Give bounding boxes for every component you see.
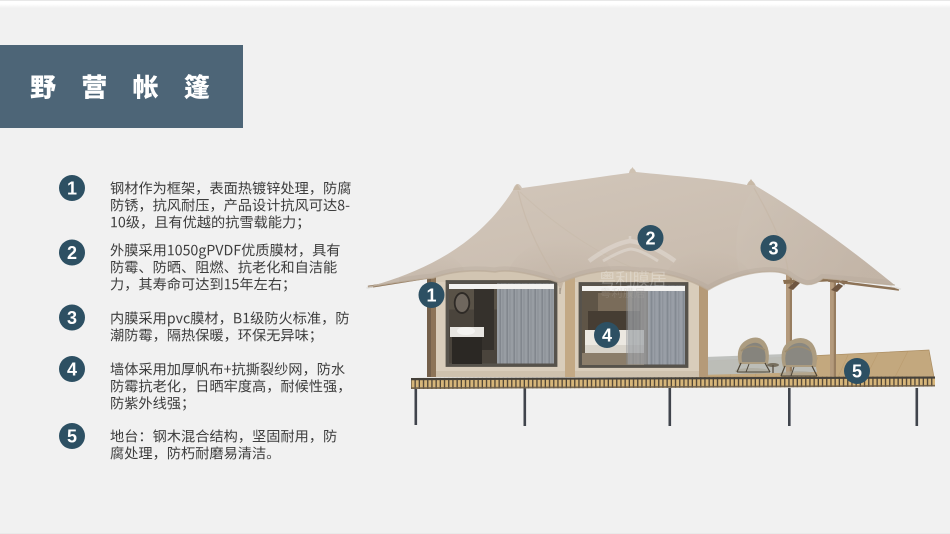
svg-text:5: 5 [852,362,862,382]
svg-text:3: 3 [67,308,77,328]
svg-text:5: 5 [67,427,77,447]
svg-text:4: 4 [602,326,612,346]
svg-text:4: 4 [67,360,77,380]
svg-text:1: 1 [426,286,436,306]
svg-text:2: 2 [67,243,77,263]
svg-text:3: 3 [768,239,778,259]
svg-text:2: 2 [645,229,655,249]
svg-text:1: 1 [67,179,77,199]
